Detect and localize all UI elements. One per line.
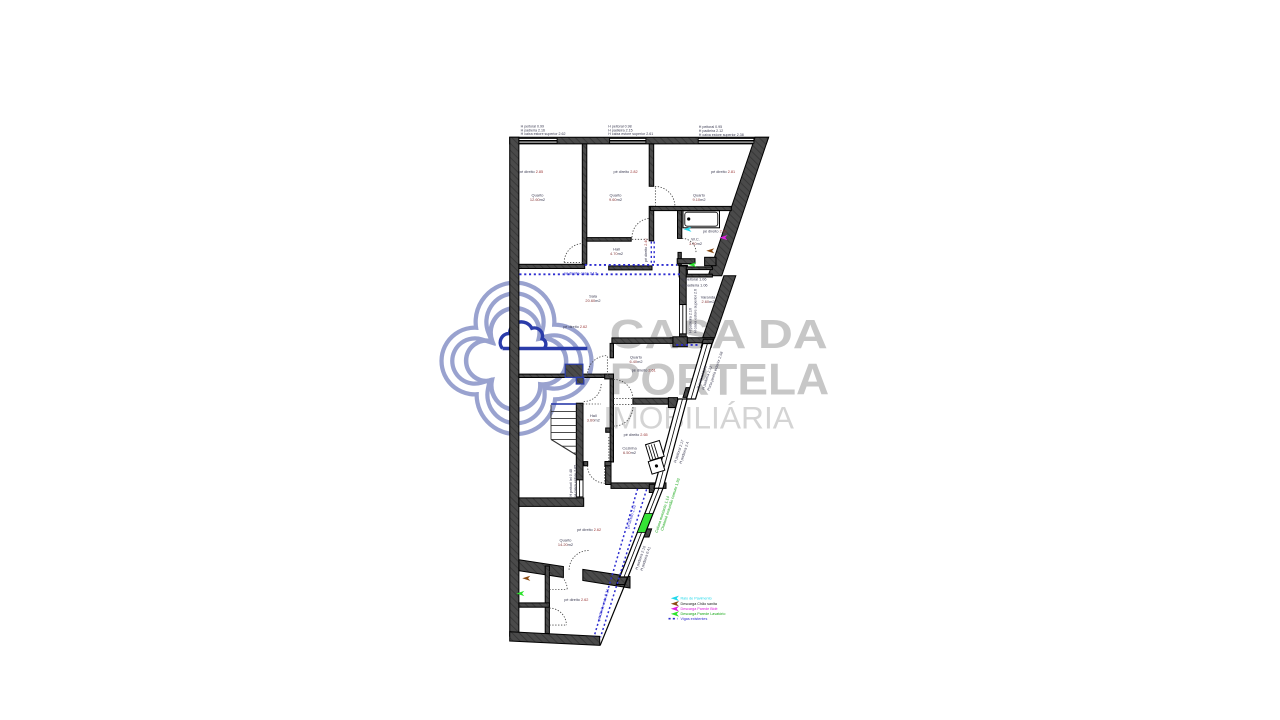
svg-text:pé direito máx 2.24: pé direito máx 2.24 bbox=[596, 587, 610, 621]
svg-text:Vigas existentes: Vigas existentes bbox=[681, 617, 708, 621]
svg-text:3.30m2: 3.30m2 bbox=[689, 241, 702, 246]
svg-text:6.50m2: 6.50m2 bbox=[623, 450, 636, 455]
svg-text:pé direito 2.62: pé direito 2.62 bbox=[577, 528, 601, 532]
svg-text:20.60m2: 20.60m2 bbox=[585, 298, 600, 303]
svg-text:H padieira 2.16: H padieira 2.16 bbox=[688, 308, 692, 333]
svg-text:H caixa estore superior 2.38: H caixa estore superior 2.38 bbox=[699, 133, 744, 137]
svg-text:Descarga Chão sanita: Descarga Chão sanita bbox=[681, 602, 718, 606]
svg-text:4.70m2: 4.70m2 bbox=[610, 251, 623, 256]
svg-text:H caixa estore 2.65: H caixa estore 2.65 bbox=[574, 465, 578, 497]
svg-text:pé direito 2.65: pé direito 2.65 bbox=[624, 433, 648, 437]
svg-text:2.60m2: 2.60m2 bbox=[702, 299, 715, 304]
svg-text:H caixa estore superior 2.6: H caixa estore superior 2.6 bbox=[693, 289, 697, 333]
svg-text:pé direito casa 2.12: pé direito casa 2.12 bbox=[564, 272, 597, 276]
svg-text:Ralo de Pavimento: Ralo de Pavimento bbox=[681, 597, 712, 601]
svg-text:H peitoral 1.06: H peitoral 1.06 bbox=[682, 278, 707, 282]
svg-text:pé direito 2.40: pé direito 2.40 bbox=[644, 239, 648, 262]
svg-text:3.60m2: 3.60m2 bbox=[587, 418, 600, 423]
svg-text:H caixa estore superior 2.62: H caixa estore superior 2.62 bbox=[521, 132, 566, 136]
svg-text:H padieira 1.06: H padieira 1.06 bbox=[682, 283, 708, 287]
svg-text:pé direito 2.61: pé direito 2.61 bbox=[703, 230, 727, 234]
svg-text:Descarga Parede Lavatório: Descarga Parede Lavatório bbox=[681, 612, 726, 616]
svg-text:14.20m2: 14.20m2 bbox=[558, 542, 573, 547]
svg-text:Descarga Parede Bidé: Descarga Parede Bidé bbox=[681, 607, 718, 611]
svg-text:pé direito 2.62: pé direito 2.62 bbox=[564, 598, 588, 602]
svg-text:pé direito 2.62: pé direito 2.62 bbox=[563, 325, 587, 329]
svg-text:pé direito 2.81: pé direito 2.81 bbox=[711, 170, 735, 174]
svg-text:pé direito 2.52: pé direito 2.52 bbox=[625, 504, 637, 529]
svg-text:6.40m2: 6.40m2 bbox=[630, 359, 643, 364]
svg-text:9.60m2: 9.60m2 bbox=[609, 197, 622, 202]
svg-text:pé direito 2.82: pé direito 2.82 bbox=[614, 170, 638, 174]
svg-text:pé direito 2.85: pé direito 2.85 bbox=[519, 170, 543, 174]
svg-text:9.10m2: 9.10m2 bbox=[693, 197, 706, 202]
svg-text:pé direito 2.61: pé direito 2.61 bbox=[632, 369, 656, 373]
svg-text:12.60m2: 12.60m2 bbox=[530, 197, 545, 202]
svg-text:H peitoril lel 0.48: H peitoril lel 0.48 bbox=[569, 469, 573, 496]
svg-text:IMOBILIÁRIA: IMOBILIÁRIA bbox=[603, 400, 794, 436]
svg-text:H caixa estore superior 2.61: H caixa estore superior 2.61 bbox=[608, 132, 653, 136]
